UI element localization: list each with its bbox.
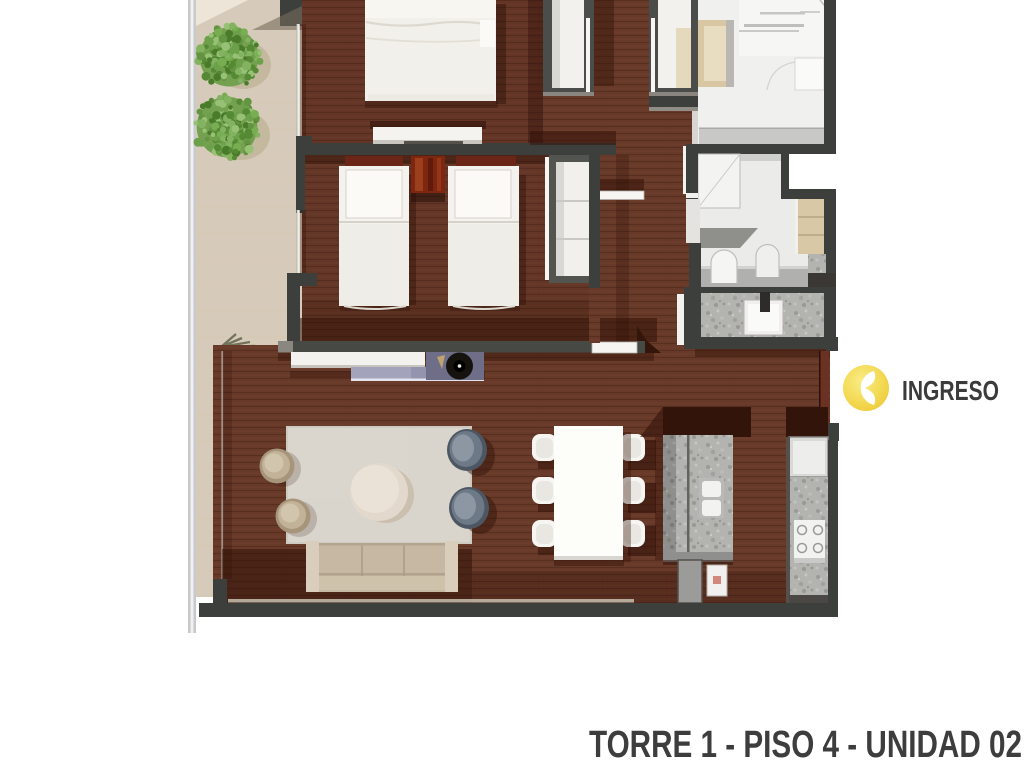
svg-text:TORRE 1 - PISO 4 - UNIDAD 02: TORRE 1 - PISO 4 - UNIDAD 02 bbox=[589, 724, 1022, 766]
svg-text:INGRESO: INGRESO bbox=[902, 375, 999, 406]
